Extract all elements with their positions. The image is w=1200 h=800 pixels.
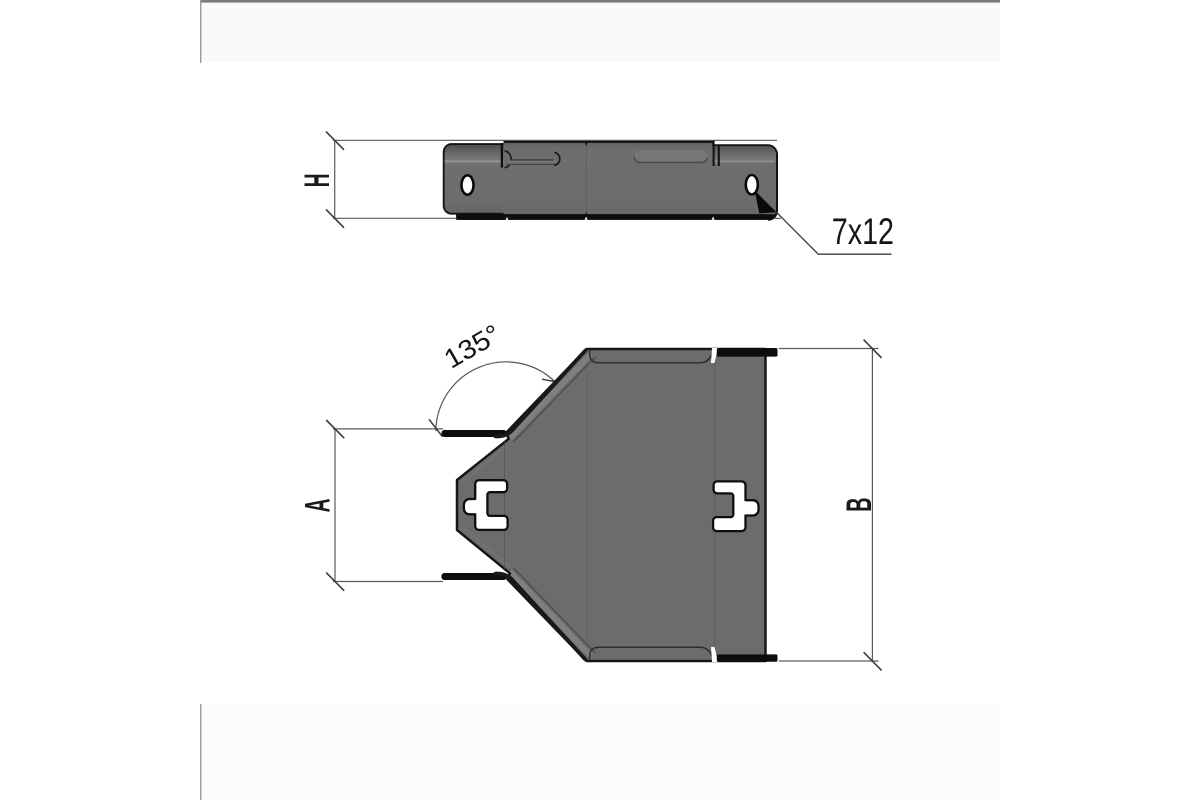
svg-text:7x12: 7x12 — [832, 212, 894, 254]
svg-text:B: B — [840, 497, 879, 511]
svg-text:H: H — [298, 173, 338, 187]
svg-text:A: A — [297, 499, 337, 513]
